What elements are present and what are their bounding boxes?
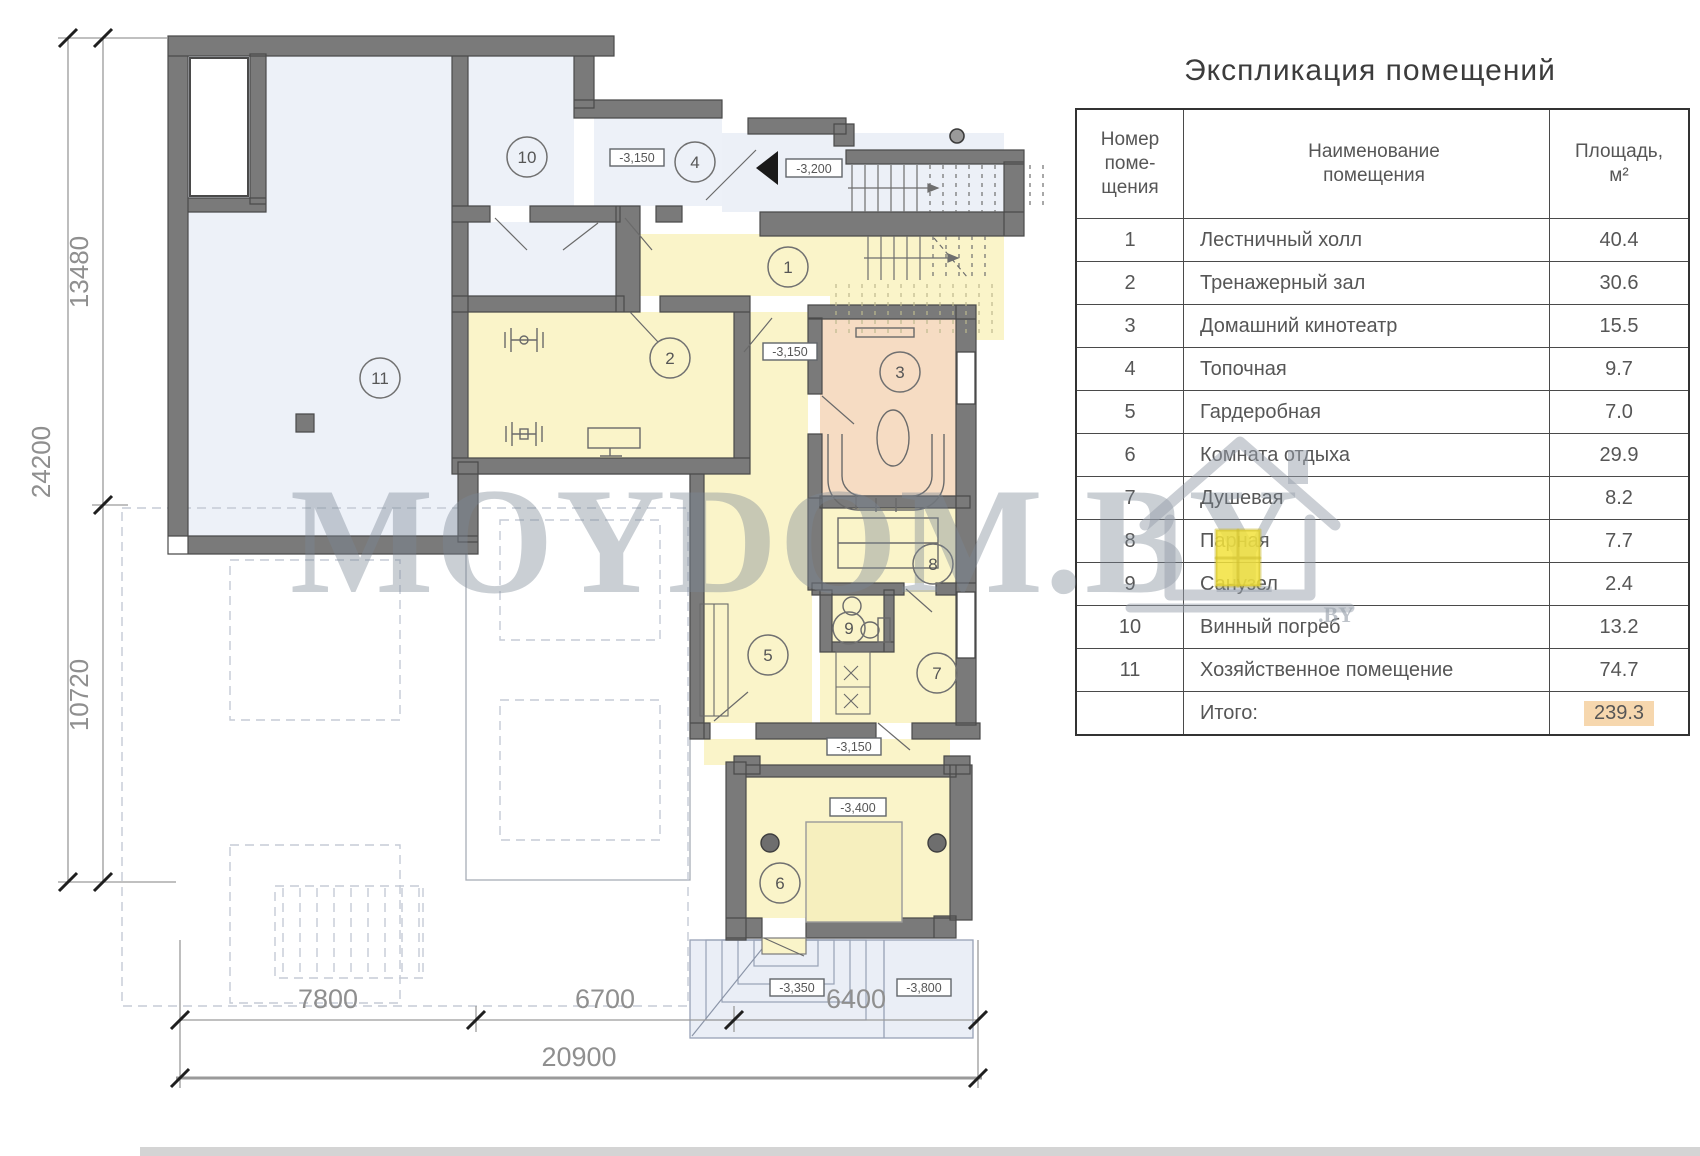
svg-text:11: 11 — [371, 369, 389, 388]
column-icon — [928, 834, 946, 852]
column-header-name: Наименование помещения — [1184, 109, 1550, 219]
room-area: 7.7 — [1550, 520, 1690, 563]
room-area: 40.4 — [1550, 219, 1690, 262]
svg-text:6: 6 — [775, 874, 784, 893]
dim-value-left-lower: 10720 — [64, 659, 94, 731]
dim-value-left-upper: 13480 — [64, 236, 94, 308]
column-header-number: Номер поме- щения — [1076, 109, 1184, 219]
table-row: 8Парная7.7 — [1076, 520, 1689, 563]
elevation-label: -3,150 — [610, 149, 664, 166]
room-area: 15.5 — [1550, 305, 1690, 348]
table-header-row: Номер поме- щения Наименование помещения… — [1076, 109, 1689, 219]
room-number: 7 — [1076, 477, 1184, 520]
room-name: Санузел — [1184, 563, 1550, 606]
elevation-label: -3,800 — [897, 979, 951, 996]
room-number: 6 — [1076, 434, 1184, 477]
column-header-area: Площадь, м² — [1550, 109, 1690, 219]
room-number: 3 — [1076, 305, 1184, 348]
room-area: 13.2 — [1550, 606, 1690, 649]
svg-text:10: 10 — [518, 148, 537, 167]
table-row: 4Топочная9.7 — [1076, 348, 1689, 391]
room-schedule-table: Номер поме- щения Наименование помещения… — [1075, 108, 1690, 736]
elevation-value: -3,800 — [906, 981, 941, 995]
elevation-value: -3,150 — [836, 740, 871, 754]
room-number: 9 — [1076, 563, 1184, 606]
table-row: 7Душевая8.2 — [1076, 477, 1689, 520]
dim-value-bottom-seg3: 6400 — [826, 984, 886, 1014]
table-row: 3Домашний кинотеатр15.5 — [1076, 305, 1689, 348]
elevation-value: -3,400 — [840, 801, 875, 815]
elevation-label: -3,350 — [770, 979, 824, 996]
svg-text:5: 5 — [763, 646, 772, 665]
table-row: 1Лестничный холл40.4 — [1076, 219, 1689, 262]
room-name: Парная — [1184, 520, 1550, 563]
dim-value-bottom-seg2: 6700 — [575, 984, 635, 1014]
svg-text:1: 1 — [783, 258, 792, 277]
room-number: 5 — [1076, 391, 1184, 434]
room-number: 2 — [1076, 262, 1184, 305]
room-area: 8.2 — [1550, 477, 1690, 520]
svg-text:9: 9 — [844, 619, 853, 638]
room-name: Домашний кинотеатр — [1184, 305, 1550, 348]
total-label: Итого: — [1184, 692, 1550, 736]
room-name: Тренажерный зал — [1184, 262, 1550, 305]
window-opening — [957, 352, 975, 404]
elevation-label: -3,150 — [827, 738, 881, 755]
total-value-badge: 239.3 — [1584, 701, 1654, 726]
room-number: 1 — [1076, 219, 1184, 262]
room-fill-wine-cellar-10 — [468, 56, 574, 206]
dim-value-left-total: 24200 — [26, 426, 56, 498]
table-total-row: Итого: 239.3 — [1076, 692, 1689, 736]
room-name: Топочная — [1184, 348, 1550, 391]
elevation-value: -3,150 — [619, 151, 654, 165]
room-fill-wardrobe-5 — [692, 474, 812, 723]
elevation-label: -3,400 — [830, 798, 886, 816]
room-number: 11 — [1076, 649, 1184, 692]
total-area-cell: 239.3 — [1550, 692, 1690, 736]
room-fill-utility-11-lobe — [466, 222, 616, 296]
projection-stair-treads — [283, 888, 419, 976]
room-schedule: Экспликация помещений Номер поме- щения … — [1075, 54, 1665, 736]
total-empty-cell — [1076, 692, 1184, 736]
elevation-value: -3,200 — [796, 162, 831, 176]
projection-box — [230, 845, 400, 1003]
page-title: Экспликация помещений — [1075, 54, 1665, 88]
room-name: Душевая — [1184, 477, 1550, 520]
column-marker — [950, 129, 964, 143]
svg-text:4: 4 — [690, 153, 699, 172]
column-icon — [761, 834, 779, 852]
light-niche — [190, 58, 248, 196]
dim-value-bottom-seg1: 7800 — [298, 984, 358, 1014]
room-name: Лестничный холл — [1184, 219, 1550, 262]
elevation-label: -3,200 — [786, 159, 842, 177]
table-row: 9Санузел2.4 — [1076, 563, 1689, 606]
room-area: 29.9 — [1550, 434, 1690, 477]
svg-text:3: 3 — [895, 363, 904, 382]
room-fill-cinema-3 — [820, 318, 956, 496]
window-opening — [957, 592, 975, 658]
room-number: 4 — [1076, 348, 1184, 391]
table-row: 2Тренажерный зал30.6 — [1076, 262, 1689, 305]
room-name: Комната отдыха — [1184, 434, 1550, 477]
lounge-platform — [806, 822, 902, 922]
room-area: 30.6 — [1550, 262, 1690, 305]
room-area: 7.0 — [1550, 391, 1690, 434]
dim-value-bottom-total: 20900 — [541, 1042, 616, 1072]
room-name: Хозяйственное помещение — [1184, 649, 1550, 692]
table-row: 11Хозяйственное помещение74.7 — [1076, 649, 1689, 692]
projection-box — [230, 560, 400, 720]
room-area: 9.7 — [1550, 348, 1690, 391]
room-name: Гардеробная — [1184, 391, 1550, 434]
table-row: 5Гардеробная7.0 — [1076, 391, 1689, 434]
room-area: 2.4 — [1550, 563, 1690, 606]
elevation-value: -3,150 — [772, 345, 807, 359]
elevation-value: -3,350 — [779, 981, 814, 995]
room-number: 8 — [1076, 520, 1184, 563]
table-row: 6Комната отдыха29.9 — [1076, 434, 1689, 477]
projection-stair-outline — [275, 886, 423, 978]
svg-text:7: 7 — [932, 664, 941, 683]
room-area: 74.7 — [1550, 649, 1690, 692]
svg-text:2: 2 — [665, 349, 674, 368]
room-number: 10 — [1076, 606, 1184, 649]
svg-text:8: 8 — [928, 555, 937, 574]
table-row: 10Винный погреб13.2 — [1076, 606, 1689, 649]
elevation-label: -3,150 — [763, 343, 817, 360]
room-name: Винный погреб — [1184, 606, 1550, 649]
